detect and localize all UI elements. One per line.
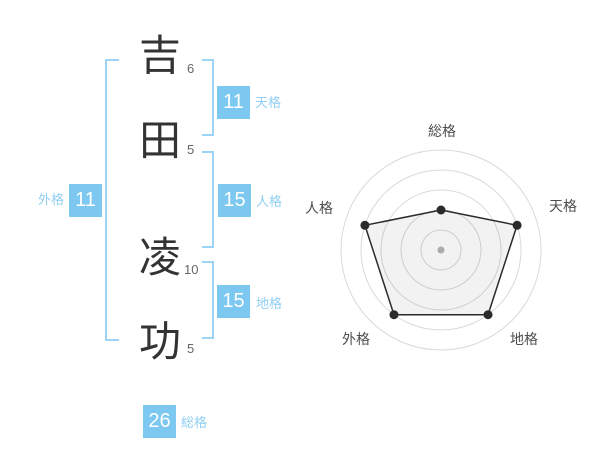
radar-data-point — [513, 221, 522, 230]
radar-axis-label: 天格 — [549, 198, 577, 214]
radar-axis-label: 人格 — [305, 200, 333, 216]
radar-series-polygon — [365, 210, 517, 315]
radar-data-point — [389, 310, 398, 319]
radar-axis-label: 外格 — [342, 331, 370, 347]
radar-data-point — [360, 221, 369, 230]
radar-data-point — [437, 206, 446, 215]
name-fortune-panel: 吉 田 凌 功 6 5 10 5 11 天格 15 人格 15 地格 11 外格… — [0, 0, 600, 470]
radar-data-point — [484, 310, 493, 319]
radar-axis-label: 総格 — [428, 123, 456, 139]
radar-axis-label: 地格 — [510, 331, 538, 347]
radar-chart: 総格天格地格外格人格 — [0, 0, 600, 470]
